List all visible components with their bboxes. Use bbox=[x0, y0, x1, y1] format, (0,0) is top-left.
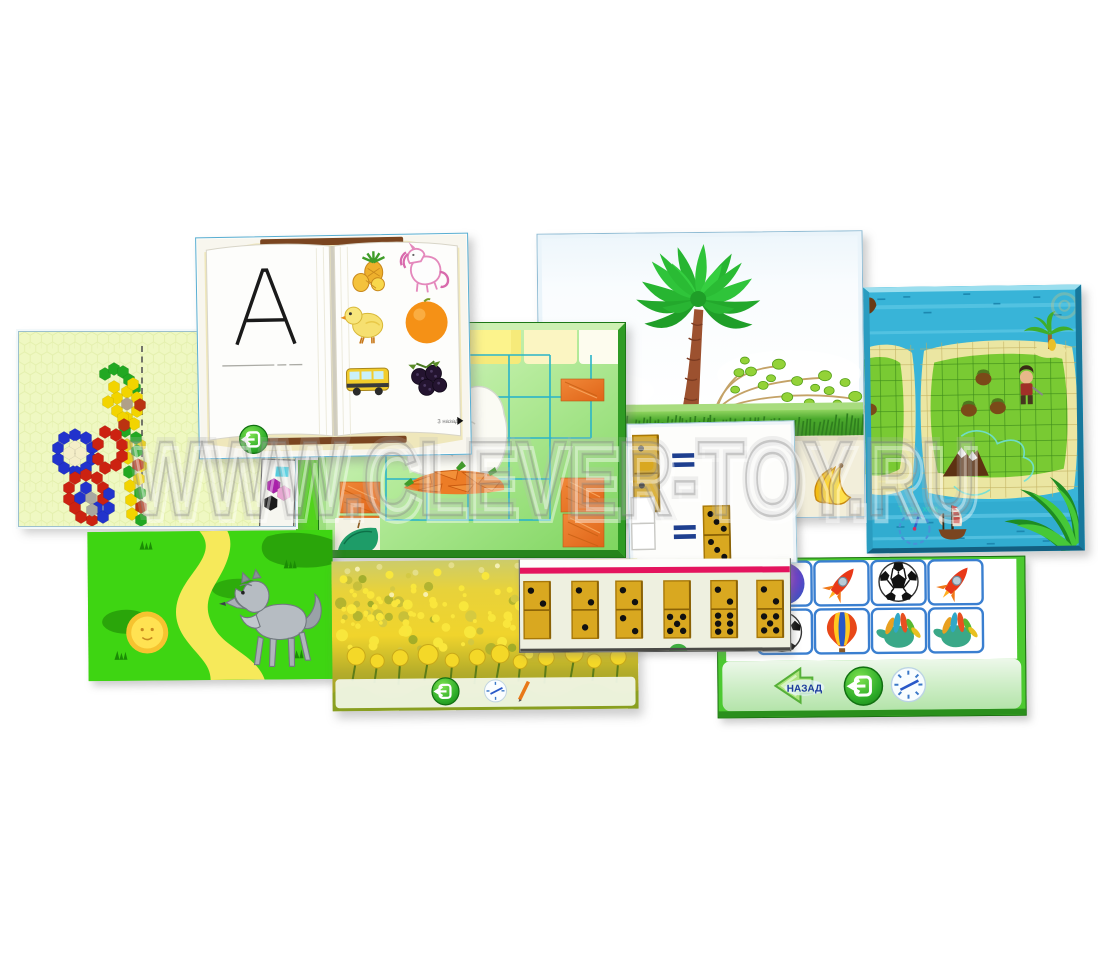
svg-text:3 назад: 3 назад bbox=[437, 419, 459, 425]
svg-text:Твой ход: Твой ход bbox=[898, 504, 938, 515]
svg-text:НАЗАД: НАЗАД bbox=[787, 683, 823, 694]
